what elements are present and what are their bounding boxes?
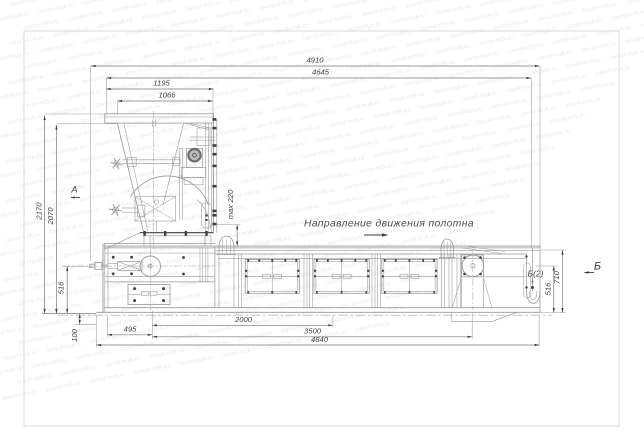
svg-text:495: 495 — [124, 325, 138, 334]
svg-text:2070: 2070 — [46, 207, 55, 226]
svg-text:Б(2): Б(2) — [528, 269, 544, 279]
svg-text:4840: 4840 — [311, 335, 329, 344]
svg-text:710: 710 — [552, 270, 561, 284]
svg-text:4910: 4910 — [306, 56, 324, 65]
svg-text:Б: Б — [594, 261, 601, 273]
svg-text:100: 100 — [70, 328, 79, 342]
svg-text:max 220: max 220 — [226, 189, 235, 219]
svg-text:2170: 2170 — [35, 202, 44, 221]
svg-text:4645: 4645 — [312, 68, 330, 77]
svg-text:516: 516 — [543, 282, 552, 296]
svg-text:1066: 1066 — [158, 91, 176, 100]
svg-text:А: А — [70, 185, 77, 195]
svg-text:1195: 1195 — [153, 79, 170, 88]
svg-text:516: 516 — [57, 281, 66, 295]
svg-text:Направление движения полотна: Направление движения полотна — [304, 219, 474, 230]
svg-text:2000: 2000 — [234, 315, 253, 324]
